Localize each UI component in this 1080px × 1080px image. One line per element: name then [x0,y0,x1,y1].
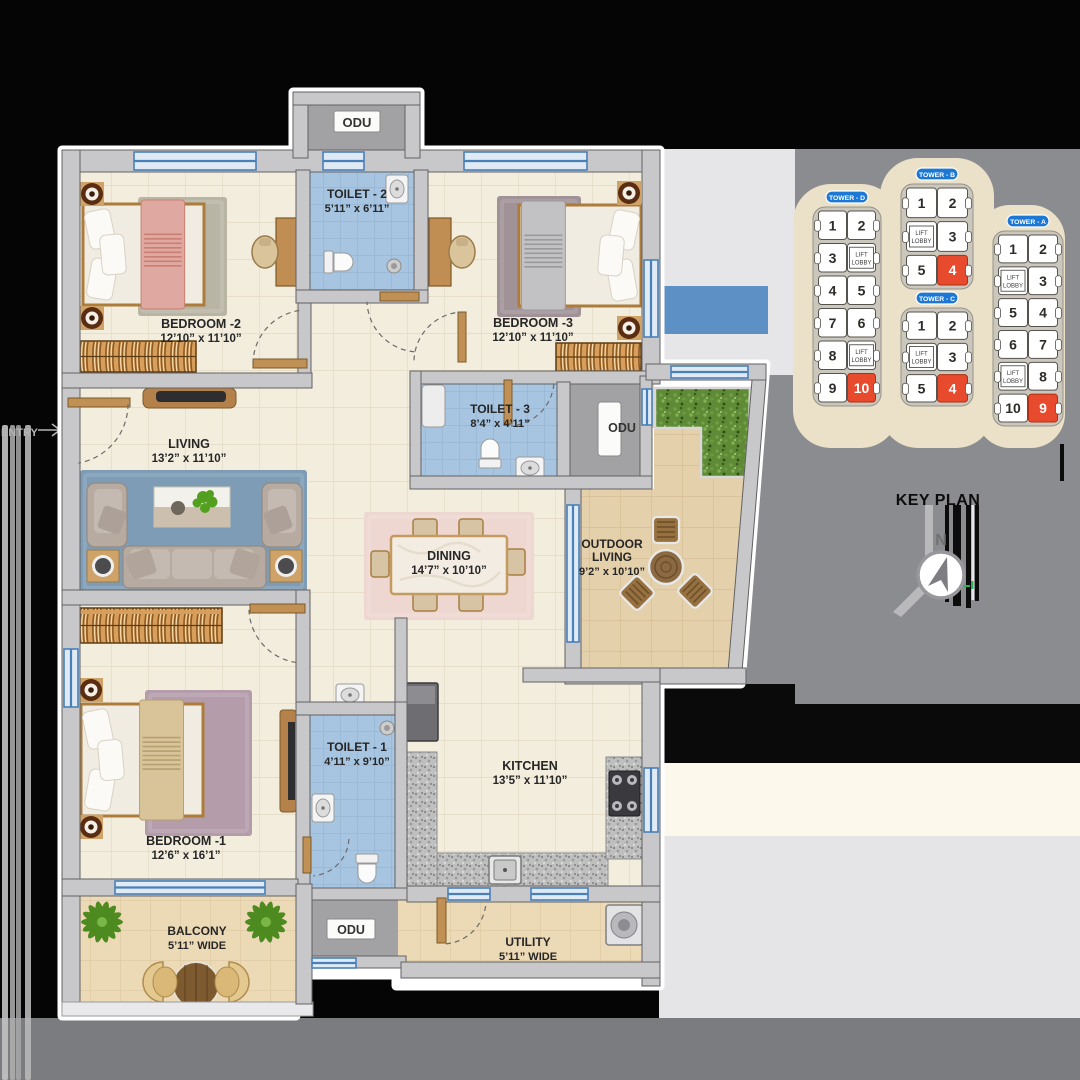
svg-text:9: 9 [829,380,837,396]
svg-text:5’11” x 6’11”: 5’11” x 6’11” [325,203,390,215]
svg-text:9: 9 [1039,400,1047,416]
svg-text:3: 3 [829,250,837,266]
svg-text:LIFT: LIFT [1007,371,1020,377]
svg-text:LIFT: LIFT [855,252,868,258]
svg-text:2: 2 [949,195,957,211]
svg-text:ENTRY: ENTRY [1,427,39,439]
svg-text:12’10” x 11’10”: 12’10” x 11’10” [492,332,573,344]
svg-text:9’2” x 10’10”: 9’2” x 10’10” [579,566,645,578]
svg-text:BALCONY: BALCONY [167,924,226,938]
svg-text:1: 1 [1009,241,1017,257]
svg-text:UTILITY: UTILITY [505,935,550,949]
svg-text:ODU: ODU [343,115,372,130]
svg-text:LOBBY: LOBBY [1003,283,1023,289]
svg-text:5’11” WIDE: 5’11” WIDE [168,940,226,952]
svg-text:N: N [935,532,947,549]
svg-text:TOWER - C: TOWER - C [919,296,955,303]
svg-text:1: 1 [918,195,926,211]
svg-text:TOWER - D: TOWER - D [829,195,865,202]
svg-text:BEDROOM -2: BEDROOM -2 [161,317,241,331]
svg-text:TOILET - 1: TOILET - 1 [327,740,387,754]
svg-text:4’11” x 9’10”: 4’11” x 9’10” [324,756,389,768]
svg-text:LIVING: LIVING [168,437,210,451]
svg-text:8: 8 [1039,368,1047,384]
svg-text:TOILET - 2: TOILET - 2 [327,187,387,201]
svg-text:2: 2 [1039,241,1047,257]
svg-text:2: 2 [858,217,866,233]
svg-text:2: 2 [949,318,957,334]
svg-text:LIFT: LIFT [915,231,928,237]
svg-text:ODU: ODU [608,421,636,435]
svg-text:ODU: ODU [337,923,365,937]
svg-text:7: 7 [1039,336,1047,352]
svg-text:3: 3 [949,349,957,365]
svg-text:DINING: DINING [427,549,471,563]
svg-text:5’11” WIDE: 5’11” WIDE [499,951,557,963]
svg-text:4: 4 [1039,305,1047,321]
svg-text:14’7” x 10’10”: 14’7” x 10’10” [411,565,486,577]
svg-text:10: 10 [1005,400,1021,416]
svg-text:13’5” x 11’10”: 13’5” x 11’10” [493,775,568,787]
svg-text:4: 4 [949,380,957,396]
svg-text:LIVING: LIVING [592,550,632,564]
svg-text:BEDROOM -3: BEDROOM -3 [493,316,573,330]
svg-text:6: 6 [858,315,866,331]
svg-text:LIFT: LIFT [1007,275,1020,281]
svg-text:3: 3 [1039,273,1047,289]
svg-text:5: 5 [918,380,926,396]
svg-text:KITCHEN: KITCHEN [502,759,558,773]
svg-text:10: 10 [854,380,870,396]
svg-text:LIFT: LIFT [855,350,868,356]
svg-text:LIFT: LIFT [915,352,928,358]
svg-text:TOWER - B: TOWER - B [919,172,955,179]
svg-text:4: 4 [829,282,837,298]
svg-text:7: 7 [829,315,837,331]
svg-text:12’10” x 11’10”: 12’10” x 11’10” [160,333,241,345]
svg-text:TOWER - A: TOWER - A [1010,219,1046,226]
svg-text:LOBBY: LOBBY [851,260,871,266]
svg-text:LOBBY: LOBBY [1003,379,1023,385]
svg-text:1: 1 [829,217,837,233]
svg-text:4: 4 [949,262,957,278]
svg-text:5: 5 [918,262,926,278]
svg-text:LOBBY: LOBBY [851,358,871,364]
svg-text:3: 3 [949,229,957,245]
svg-text:8: 8 [829,347,837,363]
svg-text:LOBBY: LOBBY [911,239,931,245]
svg-text:5: 5 [1009,305,1017,321]
svg-text:5: 5 [858,282,866,298]
svg-text:OUTDOOR: OUTDOOR [581,537,643,551]
svg-text:12’6” x 16’1”: 12’6” x 16’1” [151,850,220,862]
svg-text:8’4” x 4’11”: 8’4” x 4’11” [470,418,529,430]
svg-text:BEDROOM -1: BEDROOM -1 [146,834,226,848]
svg-text:TOILET - 3: TOILET - 3 [470,402,530,416]
svg-text:1: 1 [918,318,926,334]
svg-text:6: 6 [1009,336,1017,352]
svg-text:13’2” x 11’10”: 13’2” x 11’10” [152,453,227,465]
svg-text:LOBBY: LOBBY [911,360,931,366]
